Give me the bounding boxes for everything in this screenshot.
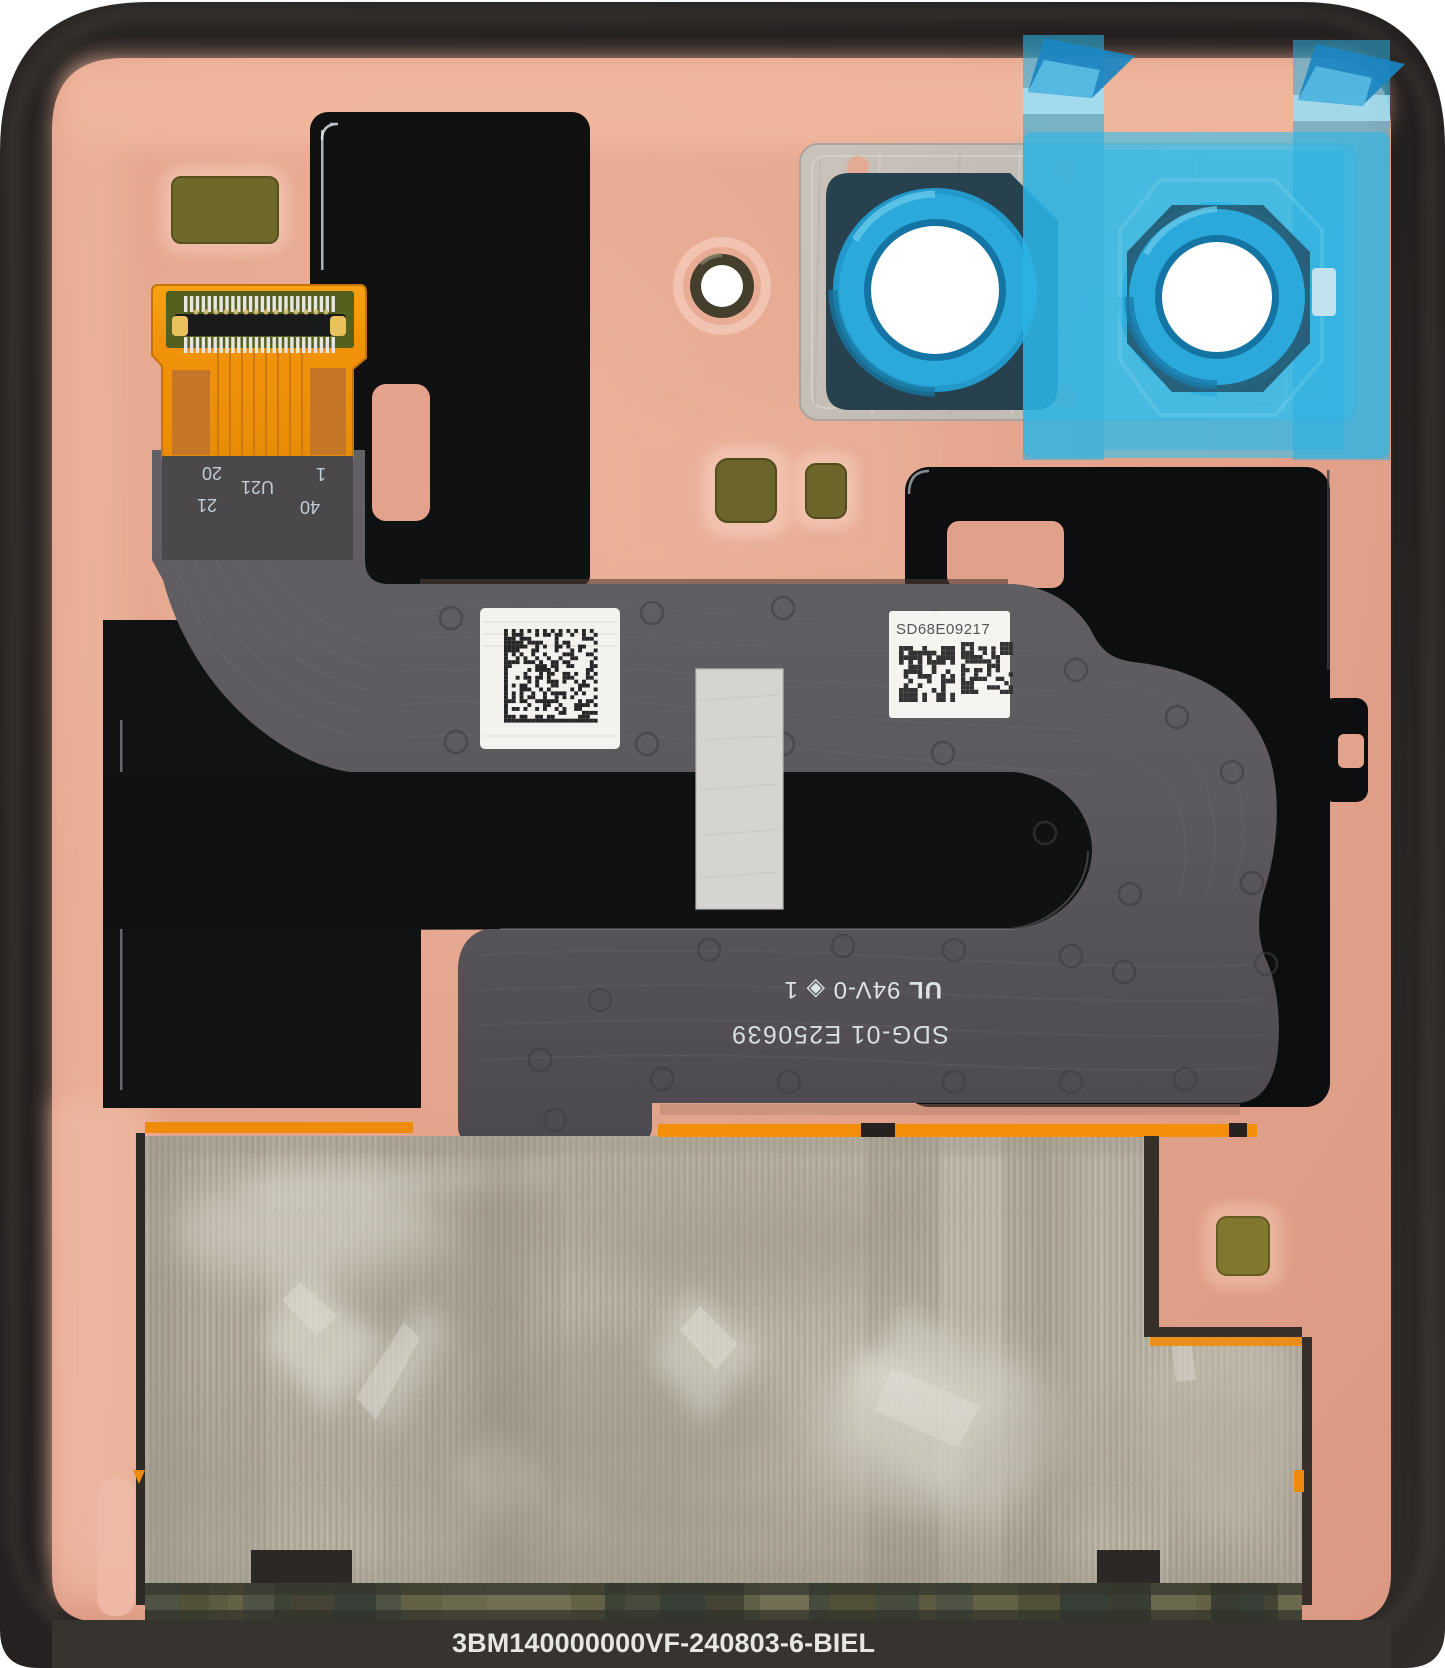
svg-text:3BM140000000VF-240803-6-BIEL: 3BM140000000VF-240803-6-BIEL — [452, 1628, 875, 1658]
svg-text:21: 21 — [197, 495, 217, 515]
svg-text:40: 40 — [300, 497, 320, 517]
svg-text:SDG-01 E250639: SDG-01 E250639 — [731, 1020, 949, 1048]
svg-text:SD68E09217: SD68E09217 — [896, 621, 990, 638]
svg-text:20: 20 — [202, 463, 222, 483]
svg-text:1: 1 — [316, 464, 326, 484]
svg-text:U21: U21 — [241, 477, 274, 497]
svg-text:UL 94V-0 ◈ 1: UL 94V-0 ◈ 1 — [783, 976, 942, 1003]
